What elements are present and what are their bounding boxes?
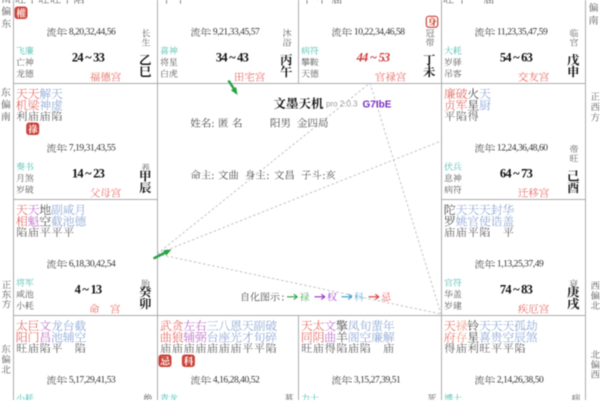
svg-text:pro 2.0.3: pro 2.0.3	[326, 100, 358, 109]
svg-text:: 6,18,30,42,54: : 6,18,30,42,54	[65, 259, 116, 269]
svg-text:24 ~ 33: 24 ~ 33	[72, 51, 105, 65]
svg-text:4 ~ 13: 4 ~ 13	[75, 283, 102, 297]
svg-text:14 ~ 23: 14 ~ 23	[72, 167, 105, 181]
svg-text:74 ~ 83: 74 ~ 83	[500, 283, 533, 297]
svg-text:: 4,16,28,40,52: : 4,16,28,40,52	[209, 375, 260, 385]
svg-text:: 5,17,29,41,53: : 5,17,29,41,53	[65, 375, 116, 385]
svg-text::: :	[212, 171, 215, 182]
svg-text:: 10,22,34,46,58: : 10,22,34,46,58	[350, 27, 406, 37]
svg-text:: 1,13,25,37,49: : 1,13,25,37,49	[493, 259, 544, 269]
svg-text::: :	[212, 119, 215, 130]
svg-text:G7IbE: G7IbE	[363, 100, 392, 111]
svg-text:: 11,23,35,47,59: : 11,23,35,47,59	[493, 27, 548, 37]
svg-text::: :	[282, 293, 285, 304]
svg-text:: 12,24,36,48,60: : 12,24,36,48,60	[493, 143, 549, 153]
svg-text::: :	[323, 171, 326, 182]
svg-text:44 ~ 53: 44 ~ 53	[356, 51, 390, 65]
svg-text:64 ~ 73: 64 ~ 73	[500, 167, 533, 181]
svg-text:54 ~ 63: 54 ~ 63	[500, 51, 533, 65]
svg-text::: :	[267, 171, 270, 182]
svg-text:: 7,19,31,43,55: : 7,19,31,43,55	[65, 143, 116, 153]
svg-text:: 9,21,33,45,57: : 9,21,33,45,57	[209, 27, 260, 37]
svg-text:: 8,20,32,44,56: : 8,20,32,44,56	[65, 27, 116, 37]
svg-text:: 3,15,27,39,51: : 3,15,27,39,51	[350, 375, 401, 385]
svg-text:34 ~ 43: 34 ~ 43	[216, 51, 249, 65]
svg-text:: 2,14,26,38,50: : 2,14,26,38,50	[493, 375, 544, 385]
